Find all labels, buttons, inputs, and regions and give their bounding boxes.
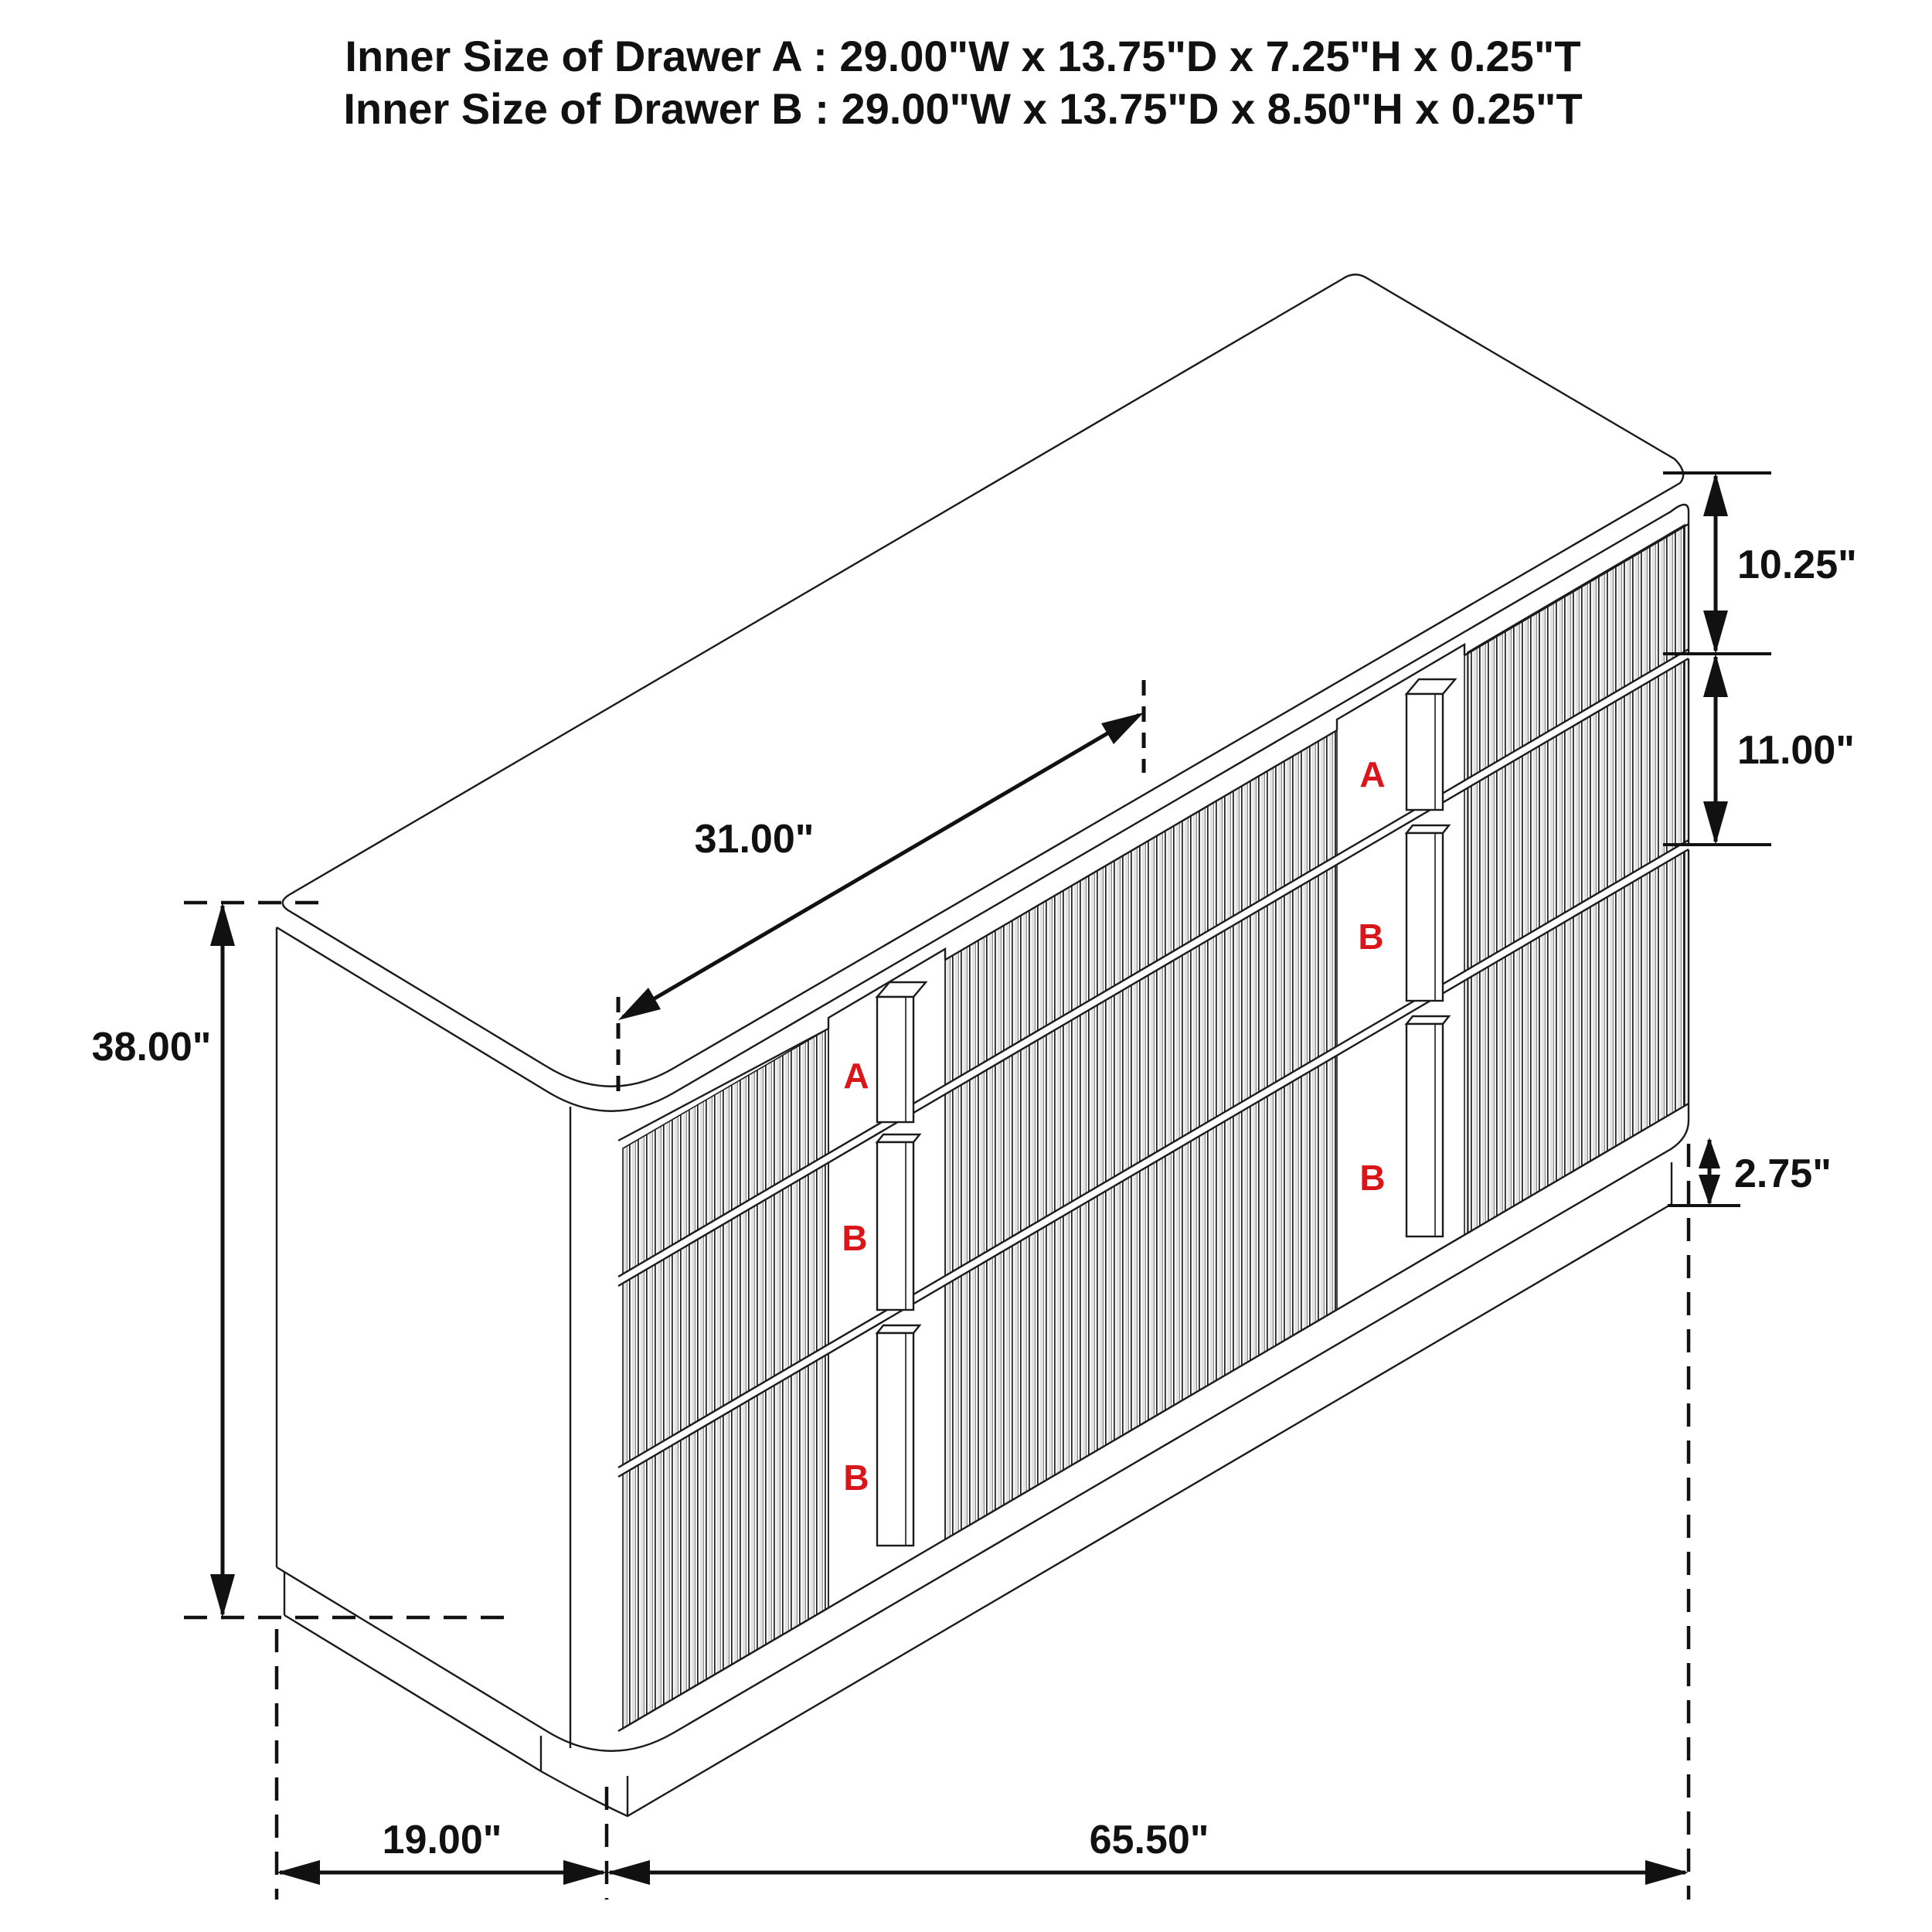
dim-overall-depth-label: 19.00" [383,1818,502,1862]
drawer-label-right-top: A [1359,754,1385,794]
handle-break-cap [1406,825,1449,833]
diagram-header: Inner Size of Drawer A : 29.00"W x 13.75… [343,32,1582,133]
dresser-drawing: A B B A B B [277,274,1689,1816]
dim-base-height: 2.75" [1668,1138,1832,1206]
drawer-label-left-middle: B [842,1218,867,1258]
dim-overall-width-label: 65.50" [1090,1818,1209,1862]
dim-base-height-label: 2.75" [1734,1151,1832,1196]
drawer-label-left-top: A [843,1056,869,1096]
handle-break-cap [1406,1016,1449,1024]
dim-middle-drawer-label: 11.00" [1737,728,1855,773]
dim-top-drawer-label: 10.25" [1737,543,1857,587]
dim-overall-depth: 19.00" [277,1818,607,1885]
title-line-1: Inner Size of Drawer A : 29.00"W x 13.75… [345,32,1580,80]
drawer-label-right-bottom: B [1359,1158,1385,1198]
dim-overall-height-label: 38.00" [92,1025,212,1070]
dim-drawer-opening-label: 31.00" [695,817,815,862]
dim-drawer-heights: 10.25" 11.00" [1663,473,1857,845]
fluted-panel-left [623,1029,828,1729]
handle-break-cap [877,1325,920,1333]
dim-overall-width: 65.50" [607,1818,1689,1885]
page-background: Inner Size of Drawer A : 29.00"W x 13.75… [0,0,1932,1932]
handle-break-cap [877,1134,920,1142]
title-line-2: Inner Size of Drawer B : 29.00"W x 13.75… [343,84,1582,133]
furniture-dimension-diagram: Inner Size of Drawer A : 29.00"W x 13.75… [0,0,1932,1932]
drawer-label-left-bottom: B [843,1458,869,1498]
drawer-label-right-middle: B [1358,917,1383,957]
